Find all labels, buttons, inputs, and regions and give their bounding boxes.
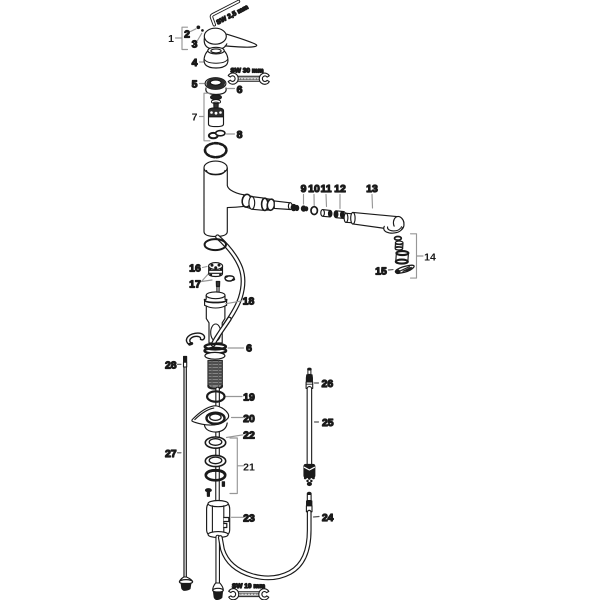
svg-text:1: 1 xyxy=(168,33,174,45)
svg-text:14: 14 xyxy=(424,252,436,264)
svg-text:24: 24 xyxy=(322,512,334,524)
svg-text:9: 9 xyxy=(301,183,307,195)
svg-text:21: 21 xyxy=(243,462,255,474)
svg-text:2: 2 xyxy=(184,29,190,41)
svg-text:19: 19 xyxy=(243,392,255,404)
svg-text:5: 5 xyxy=(192,79,198,91)
svg-text:8: 8 xyxy=(237,129,243,141)
svg-text:13: 13 xyxy=(366,183,378,195)
svg-text:11: 11 xyxy=(320,183,331,195)
svg-text:16: 16 xyxy=(189,263,201,275)
svg-text:6: 6 xyxy=(246,343,252,355)
svg-text:22: 22 xyxy=(243,430,255,442)
svg-text:28: 28 xyxy=(165,360,177,372)
svg-text:26: 26 xyxy=(322,378,334,390)
svg-text:10: 10 xyxy=(308,183,320,195)
svg-text:27: 27 xyxy=(165,448,177,460)
svg-text:7: 7 xyxy=(192,112,198,124)
svg-text:4: 4 xyxy=(192,57,198,69)
svg-text:17: 17 xyxy=(189,279,201,291)
svg-text:25: 25 xyxy=(322,417,334,429)
svg-text:12: 12 xyxy=(334,183,346,195)
svg-text:15: 15 xyxy=(375,266,387,278)
svg-text:3: 3 xyxy=(192,39,198,51)
svg-text:20: 20 xyxy=(243,413,255,425)
svg-text:18: 18 xyxy=(243,296,255,308)
svg-text:SW 19 mm: SW 19 mm xyxy=(232,583,265,590)
svg-text:23: 23 xyxy=(243,513,255,525)
svg-text:6: 6 xyxy=(237,84,243,96)
